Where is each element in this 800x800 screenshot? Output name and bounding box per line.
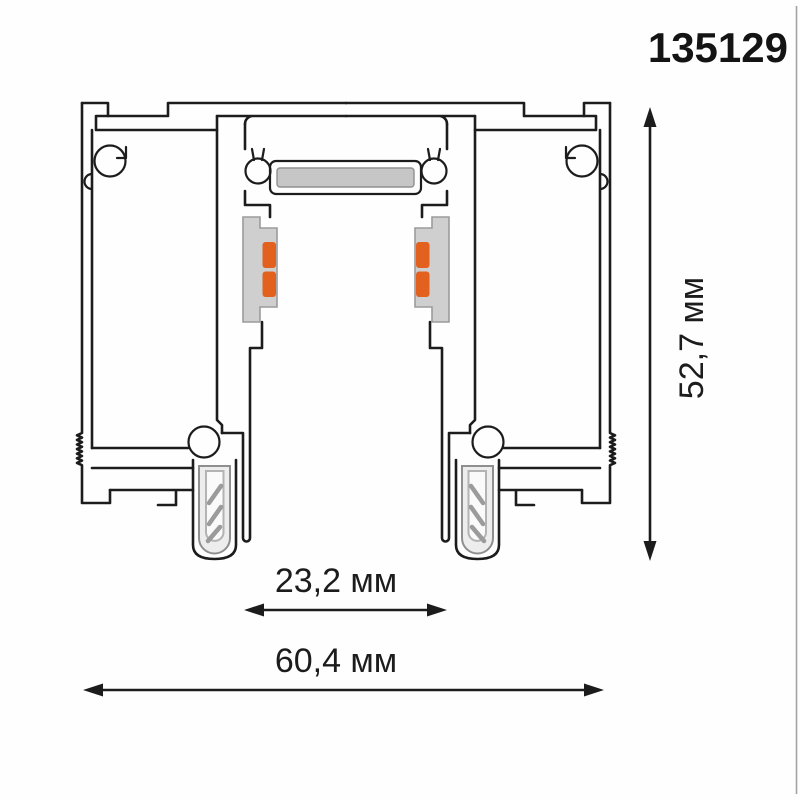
dim-height-arrow-top xyxy=(644,107,657,127)
dim-height-label: 52,7 мм xyxy=(673,277,711,399)
insulator-strip xyxy=(277,168,414,187)
dim-width-arrow-right xyxy=(584,684,604,697)
dim-width: 60,4 мм xyxy=(83,642,604,697)
profile-drawing: 52,7 мм 23,2 мм 60,4 мм 135129 xyxy=(0,0,800,800)
dim-slot-arrow-right xyxy=(427,604,447,617)
dim-width-arrow-left xyxy=(83,684,103,697)
part-number: 135129 xyxy=(648,24,788,71)
dim-height: 52,7 мм xyxy=(644,107,712,561)
dim-slot-arrow-left xyxy=(244,604,264,617)
technical-drawing-page: 52,7 мм 23,2 мм 60,4 мм 135129 xyxy=(0,0,800,800)
dim-width-label: 60,4 мм xyxy=(275,642,397,680)
dim-height-arrow-bottom xyxy=(644,541,657,561)
dim-slot-label: 23,2 мм xyxy=(275,562,397,600)
dim-slot: 23,2 мм xyxy=(244,562,447,617)
